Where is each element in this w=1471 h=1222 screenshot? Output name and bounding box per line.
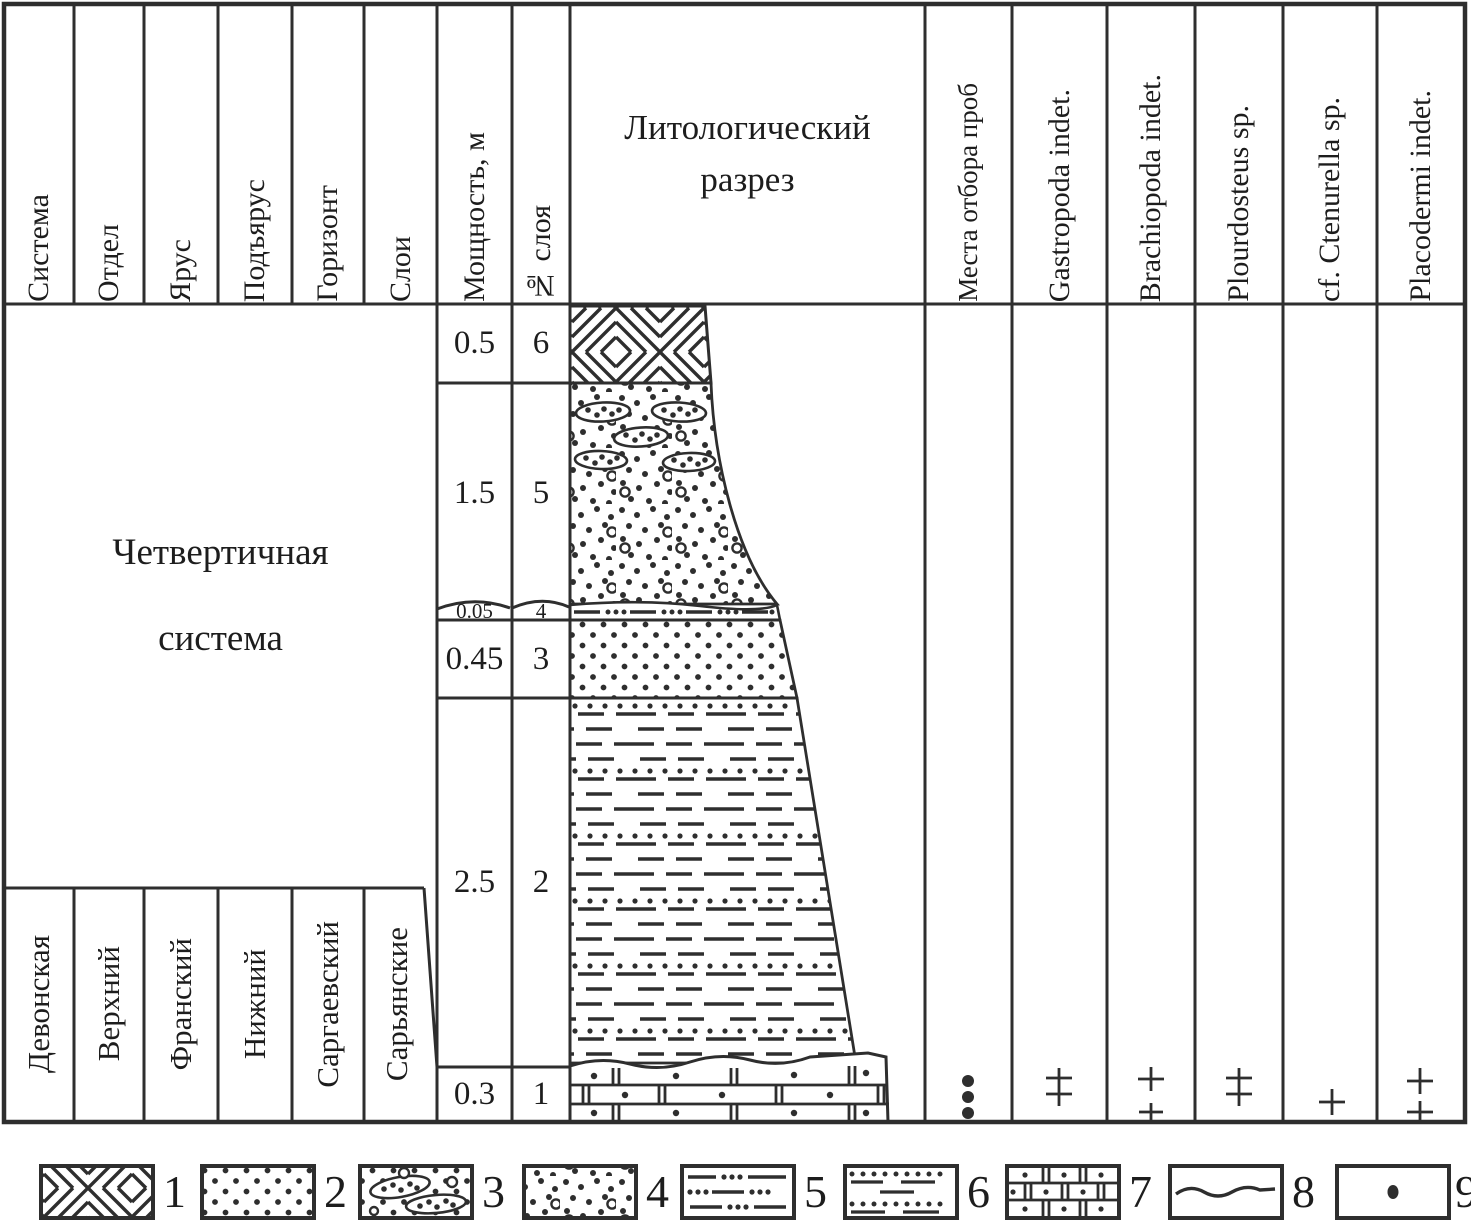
devonian-system-cell: Девонская xyxy=(4,888,74,1120)
brachiopoda-two-plus-icon xyxy=(1138,1067,1164,1122)
header-lithology: Литологический разрез xyxy=(570,4,925,304)
quaternary-line1: Четвертичная xyxy=(112,510,328,596)
header-beds: Слои xyxy=(364,6,437,318)
legend-box-dots-circles xyxy=(524,1166,636,1218)
devonian-horizon-cell: Саргаевский xyxy=(292,888,364,1120)
devonian-division-cell: Верхний xyxy=(74,888,144,1120)
devonian-beds-cell: Сарьянские xyxy=(364,888,430,1120)
devonian-stage-cell: Франский xyxy=(144,888,218,1120)
lithology-column xyxy=(570,306,889,1122)
header-horizon-label: Горизонт xyxy=(311,185,345,302)
legend-number-3: 3 xyxy=(482,1166,505,1218)
devonian-substage-label: Нижний xyxy=(237,949,273,1059)
layer-no-5: 5 xyxy=(512,383,570,604)
legend-boxes xyxy=(41,1166,1449,1218)
header-lithology-line2: разрез xyxy=(700,154,794,206)
legend-number-5: 5 xyxy=(804,1166,827,1218)
legend-number-7: 7 xyxy=(1129,1166,1152,1218)
header-division: Отдел xyxy=(74,6,144,318)
header-fossil-gastropoda: Gastropoda indet. xyxy=(1012,6,1107,314)
legend-box-dots xyxy=(202,1166,314,1218)
devonian-division-label: Верхний xyxy=(91,946,127,1061)
header-system: Система xyxy=(4,6,74,318)
stratigraphic-column-figure: Система Отдел Ярус Подъярус Горизонт Сло… xyxy=(0,0,1471,1222)
header-division-label: Отдел xyxy=(92,224,126,302)
legend-number-2: 2 xyxy=(324,1166,347,1218)
header-substage: Подъярус xyxy=(218,6,292,318)
sampling-dots-icon xyxy=(962,1075,974,1119)
header-substage-label: Подъярус xyxy=(238,179,272,302)
gastropoda-double-cross-icon xyxy=(1046,1068,1072,1106)
layer-no-3: 3 xyxy=(512,620,570,698)
legend-number-1: 1 xyxy=(163,1166,186,1218)
thickness-layer2: 2.5 xyxy=(437,698,512,1107)
fossil-column-label: Plourdosteus sp. xyxy=(1222,105,1256,302)
fossil-column-label: cf. Ctenurella sp. xyxy=(1313,97,1347,302)
devonian-stage-label: Франский xyxy=(163,938,199,1070)
header-layer-no: № слоя xyxy=(512,6,570,316)
layer-no-4: 4 xyxy=(512,602,570,620)
thickness-layer5: 1.5 xyxy=(437,383,512,604)
header-horizon: Горизонт xyxy=(292,6,364,318)
plourdosteus-double-cross-icon xyxy=(1226,1068,1252,1106)
thickness-layer4: 0.05 xyxy=(437,602,512,620)
legend-number-9: 9 xyxy=(1455,1166,1471,1218)
fossil-column-label: Gastropoda indet. xyxy=(1043,89,1077,302)
header-stage-label: Ярус xyxy=(164,239,198,302)
legend-number-8: 8 xyxy=(1292,1166,1315,1218)
layer6-shape xyxy=(570,306,711,383)
layer-no-6: 6 xyxy=(512,304,570,383)
occurrence-marks xyxy=(962,1067,1433,1122)
header-sampling-label: Места отбора проб xyxy=(953,83,984,302)
legend-single-dot-detail xyxy=(1388,1185,1399,1199)
devonian-beds-label: Сарьянские xyxy=(379,927,415,1081)
header-thickness-label: Мощность, м xyxy=(458,132,492,302)
legend-number-4: 4 xyxy=(646,1166,669,1218)
devonian-substage-cell: Нижний xyxy=(218,888,292,1120)
header-fossil-plourdosteus: Plourdosteus sp. xyxy=(1195,6,1283,314)
legend-number-6: 6 xyxy=(967,1166,990,1218)
header-lithology-line1: Литологический xyxy=(624,102,870,154)
layer-no-2: 2 xyxy=(512,698,570,1107)
legend-box-cross-hatch xyxy=(41,1166,153,1218)
devonian-system-label: Девонская xyxy=(21,935,57,1073)
header-beds-label: Слои xyxy=(384,236,418,302)
thickness-layer1: 0.3 xyxy=(437,1067,512,1122)
legend-box-wavy-line xyxy=(1170,1166,1282,1218)
fossil-column-label: Brachiopoda indet. xyxy=(1134,74,1168,302)
header-fossil-placodermi: Placodermi indet. xyxy=(1377,6,1465,314)
layer-no-1: 1 xyxy=(512,1067,570,1122)
header-stage: Ярус xyxy=(144,6,218,318)
header-layer-no-label: № слоя xyxy=(524,205,558,302)
thickness-layer6: 0.5 xyxy=(437,304,512,383)
thickness-layer3: 0.45 xyxy=(437,620,512,698)
layer2-shape xyxy=(570,698,856,1063)
quaternary-system-cell: Четвертичная система xyxy=(4,304,437,888)
header-fossil-brachiopoda: Brachiopoda indet. xyxy=(1107,6,1195,314)
ctenurella-plus-icon xyxy=(1319,1089,1345,1115)
header-fossil-ctenurella: cf. Ctenurella sp. xyxy=(1283,6,1377,314)
fossil-column-label: Placodermi indet. xyxy=(1404,90,1438,302)
devonian-horizon-label: Саргаевский xyxy=(310,921,346,1088)
placodermi-two-plus-icon xyxy=(1407,1068,1433,1122)
quaternary-line2: система xyxy=(158,596,283,682)
header-thickness: Мощность, м xyxy=(437,6,512,314)
layer3-shape xyxy=(570,620,797,698)
header-sampling: Места отбора проб xyxy=(925,6,1012,312)
header-system-label: Система xyxy=(22,194,56,302)
